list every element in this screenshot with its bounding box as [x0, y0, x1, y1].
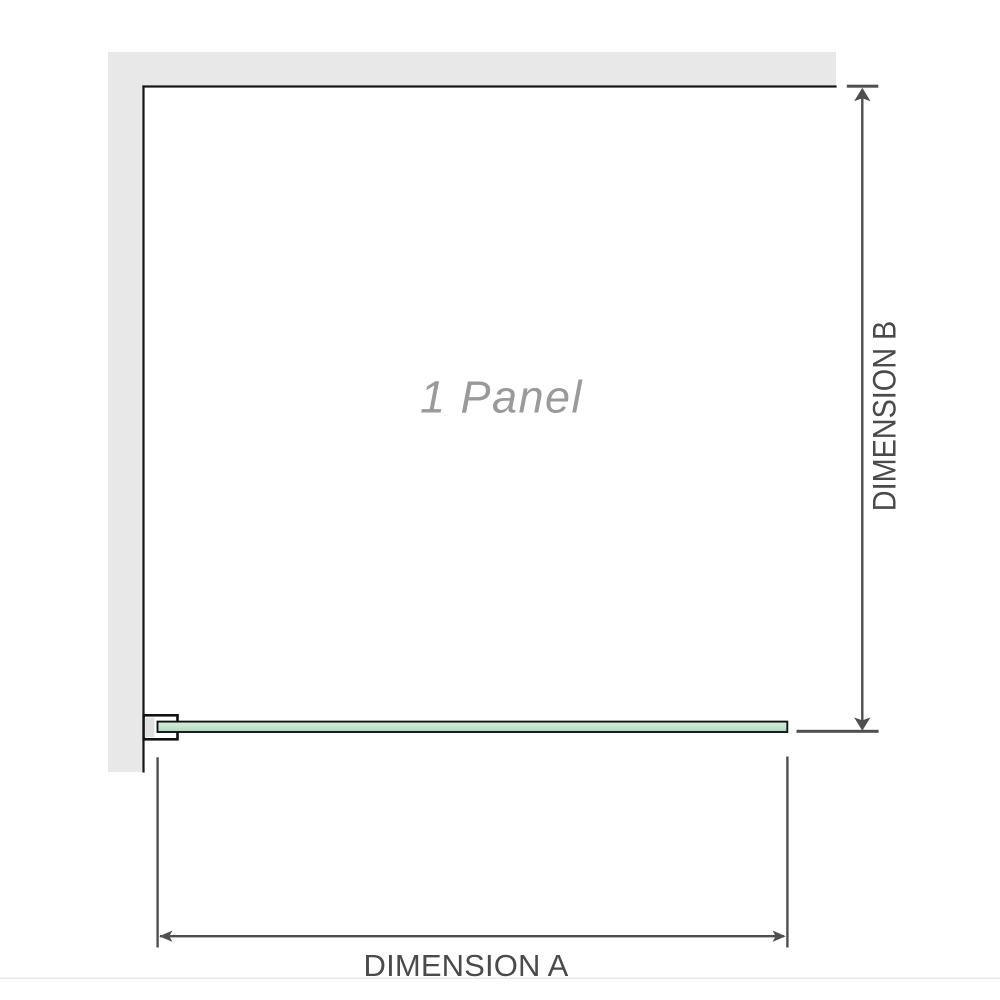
svg-text:DIMENSION B: DIMENSION B: [867, 321, 903, 511]
svg-text:DIMENSION A: DIMENSION A: [364, 948, 569, 983]
svg-text:1 Panel: 1 Panel: [420, 371, 584, 422]
